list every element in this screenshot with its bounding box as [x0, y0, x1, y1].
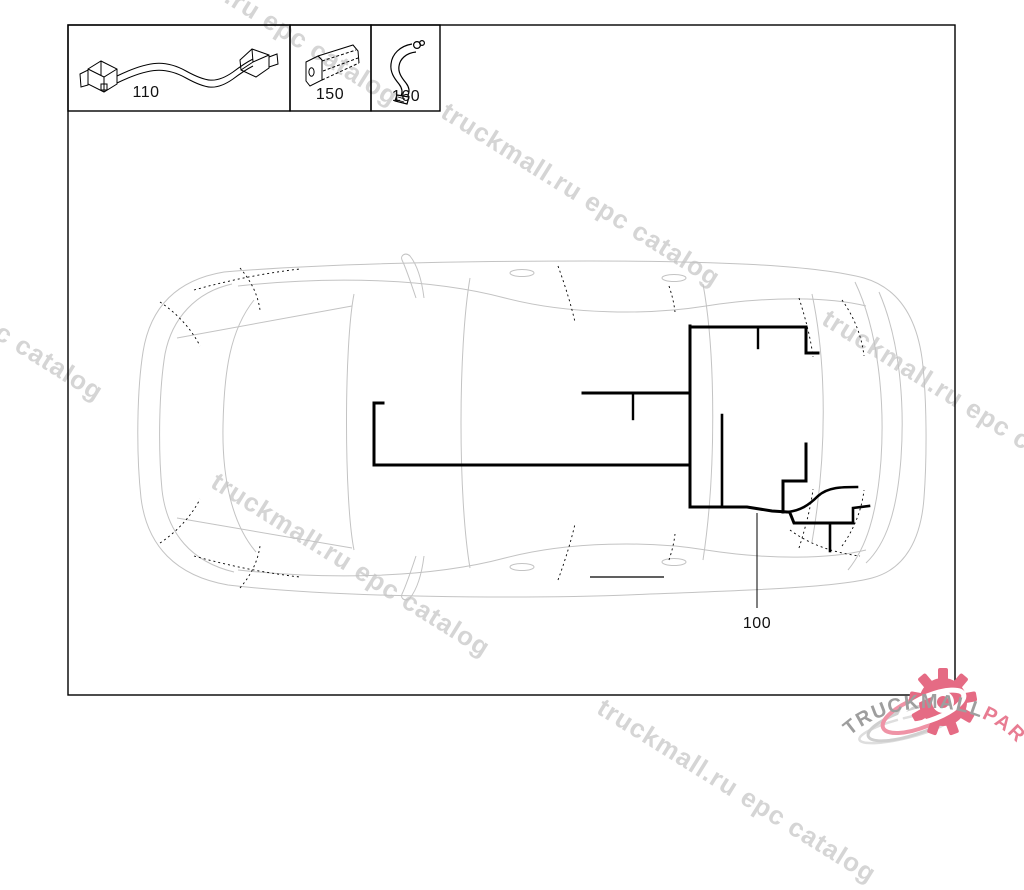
panel-seam-lines	[160, 266, 864, 588]
door-handle	[510, 270, 534, 277]
side-mirror-top	[402, 254, 424, 298]
cable-icon	[80, 49, 278, 92]
part-label-100[interactable]: 100	[729, 615, 785, 633]
door-handle	[662, 275, 686, 282]
part-label-160[interactable]: 160	[378, 88, 434, 106]
sleeve-icon	[306, 45, 359, 86]
epc-diagram-page: { "watermark": { "text": "truckmall.ru e…	[0, 0, 1024, 750]
door-handle	[662, 559, 686, 566]
wiring-harness-100	[374, 326, 869, 551]
drawing-frame	[68, 25, 955, 695]
car-outline	[138, 254, 926, 600]
part-label-150[interactable]: 150	[302, 86, 358, 104]
side-mirror-bottom	[402, 556, 424, 600]
truckmall-logo: TRUCKMALLPARTS	[820, 630, 1024, 750]
part-label-110[interactable]: 110	[118, 84, 174, 102]
door-handle	[510, 564, 534, 571]
